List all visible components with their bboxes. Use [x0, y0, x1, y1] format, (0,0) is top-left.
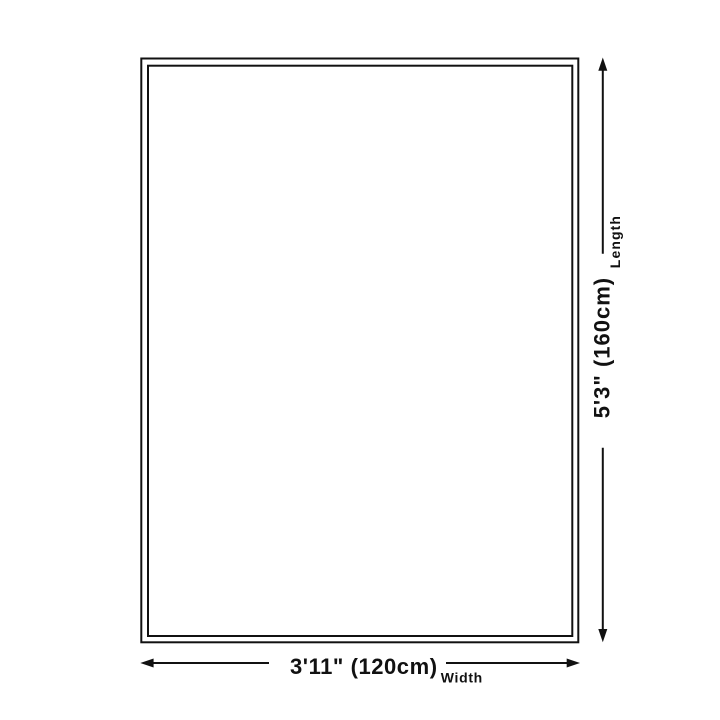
svg-text:5'3" (160cm): 5'3" (160cm) — [589, 277, 614, 418]
svg-text:3'11" (120cm): 3'11" (120cm) — [290, 654, 438, 679]
svg-text:Length: Length — [607, 215, 623, 268]
svg-text:Width: Width — [441, 669, 483, 685]
